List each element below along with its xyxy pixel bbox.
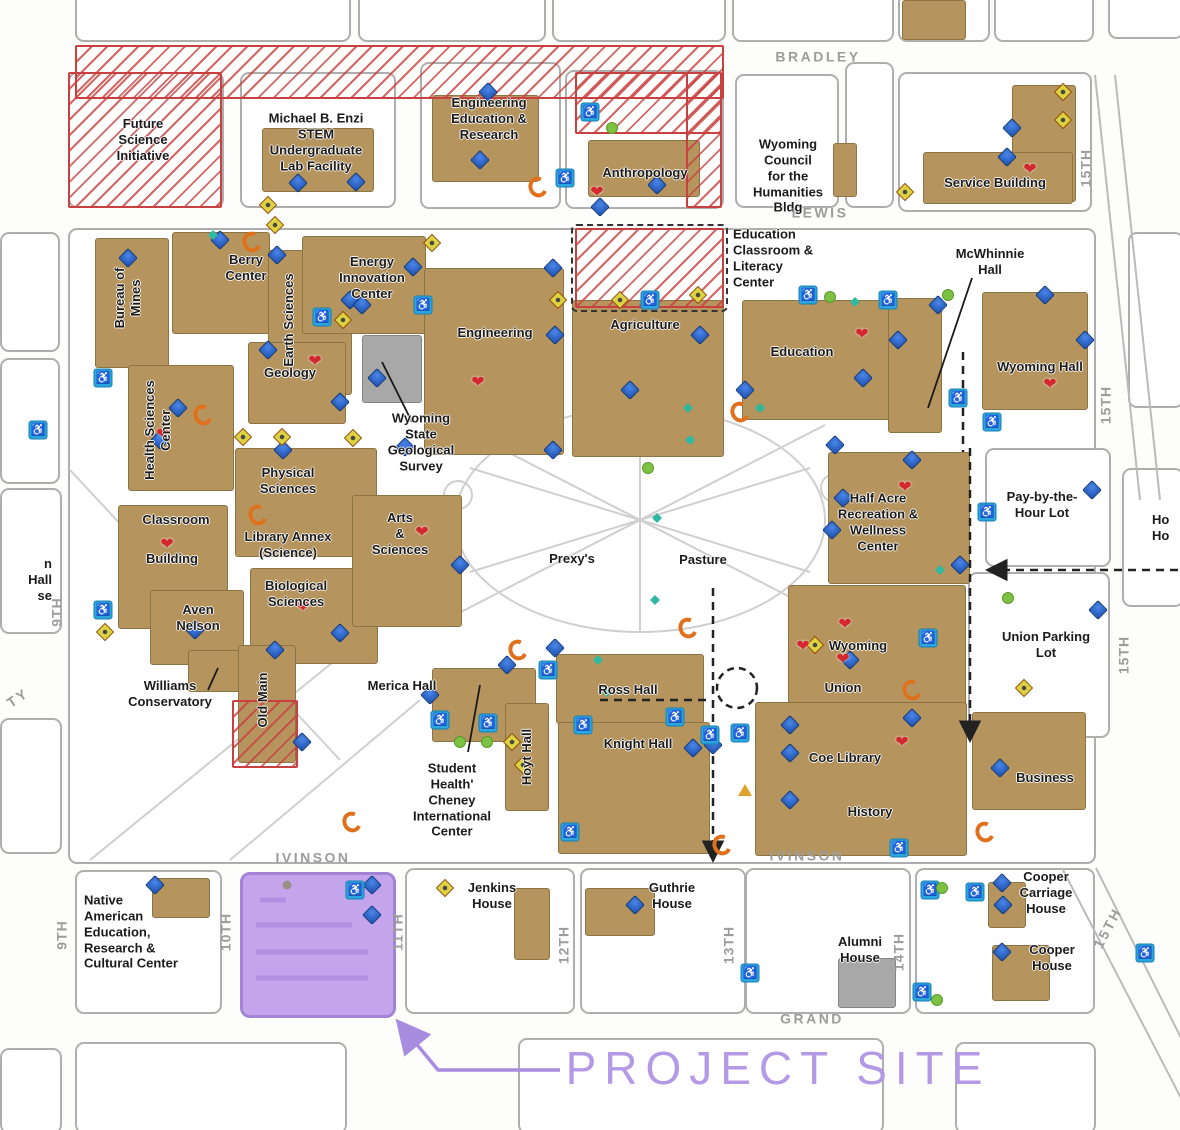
label-arts-sciences: Arts & Sciences [372,510,428,558]
label-union-parking-lot: Union Parking Lot [1002,629,1090,661]
street-label-grand: GRAND [780,1010,844,1027]
label-library-annex-science: Library Annex (Science) [245,529,332,561]
building-humanities-bldg [833,143,857,197]
city-block [358,0,546,42]
street-label-9th: 9TH [53,920,70,949]
city-block [1122,468,1180,607]
city-block [1108,0,1180,39]
access-icon: ♿ [94,369,113,388]
label-history: History [848,804,893,820]
city-block [0,232,60,352]
label-native-american-education-resear: Native American Education, Research & Cu… [84,892,178,971]
access-icon: ♿ [741,964,760,983]
campus-map: ♿♿♿♿♿♿♿♿♿♿♿♿♿♿♿♿♿♿♿♿♿♿♿♿♿♿♿♿♿❤❤❤❤❤❤❤❤❤❤❤… [0,0,1180,1130]
street-label-15th: 15TH [1097,386,1114,424]
project-site-annotation: PROJECT SITE [566,1040,991,1096]
label-future-science-initiative: Future Science Initiative [117,116,170,164]
access-icon: ♿ [913,983,932,1002]
green-icon [1002,592,1014,604]
city-block [994,0,1094,42]
label-coe-library: Coe Library [809,750,881,766]
heart-icon: ❤ [895,735,908,751]
access-icon: ♿ [561,823,580,842]
label-old-main: Old Main [255,673,271,728]
access-icon: ♿ [666,708,685,727]
building-wyoming-state-geological-survey [362,335,422,403]
label-cooper-carriage-house: Cooper Carriage House [1020,869,1073,917]
street-label-14th: 14TH [890,933,907,971]
street-label-10th: 10TH [217,913,234,951]
label-wyoming: Wyoming [829,638,887,654]
label-health-sciences-center: Health Sciences Center [142,380,174,480]
city-block [75,0,351,42]
access-icon: ♿ [539,661,558,680]
label-wyoming-hall: Wyoming Hall [997,359,1083,375]
heart-icon: ❤ [590,185,603,201]
building-top-right-building [902,0,966,40]
label-hoyt-hall: Hoyt Hall [519,729,535,785]
label-prexy-s: Prexy's [549,551,595,567]
access-icon: ♿ [479,714,498,733]
label-education: Education [771,344,834,360]
street-label-15th: 15TH [1090,904,1126,951]
street-label-12th: 12TH [555,926,572,964]
label-merica-hall: Merica Hall [368,678,437,694]
street-label-bradley: BRADLEY [775,48,860,65]
access-icon: ♿ [313,308,332,327]
label-student-health-cheney-internatio: Student Health' Cheney International Cen… [413,760,491,839]
label-berry-center: Berry Center [225,252,266,284]
label-biological-sciences: Biological Sciences [265,578,327,610]
building-guthrie-house-bldg [585,888,655,936]
label-wyoming-state-geological-survey: Wyoming State Geological Survey [388,410,454,473]
access-icon: ♿ [966,883,985,902]
access-icon: ♿ [1136,944,1155,963]
label-engineering-education-research: Engineering Education & Research [451,95,527,143]
city-block [75,1042,347,1130]
street-label-9th: 9TH [48,597,65,626]
heart-icon: ❤ [838,617,851,633]
gray-icon [283,881,292,890]
heart-icon: ❤ [1043,377,1056,393]
label-earth-sciences: Earth Sciences [281,273,297,366]
building-mcwhinnie-hall [888,298,942,433]
street-label-13th: 13TH [720,926,737,964]
city-block [0,1048,62,1130]
access-icon: ♿ [978,503,997,522]
city-block [552,0,726,42]
label-guthrie-house: Guthrie House [649,880,695,912]
access-icon: ♿ [574,716,593,735]
heart-icon: ❤ [855,327,868,343]
warn-icon [738,784,752,796]
green-icon [931,994,943,1006]
green-icon [824,291,836,303]
label-service-building: Service Building [944,175,1046,191]
access-icon: ♿ [556,169,575,188]
label-half-acre-recreation-wellness-ce: Half Acre Recreation & Wellness Center [838,490,918,553]
access-icon: ♿ [641,291,660,310]
street-label-ty: TY [4,684,33,711]
access-icon: ♿ [431,711,450,730]
access-icon: ♿ [701,726,720,745]
building-wyoming-hall [982,292,1088,410]
label-geology: Geology [264,365,316,381]
access-icon: ♿ [919,629,938,648]
label-business: Business [1016,770,1074,786]
label-education-classroom-literacy-cen: Education Classroom & Literacy Center [733,226,813,289]
label-cooper-house: Cooper House [1029,942,1075,974]
heart-icon: ❤ [836,652,849,668]
label-pay-by-the-hour-lot: Pay-by-the- Hour Lot [1007,489,1078,521]
access-icon: ♿ [890,839,909,858]
building-business [972,712,1086,810]
city-block [1128,232,1180,408]
label-building: Building [146,551,198,567]
label-classroom: Classroom [142,512,209,528]
city-block [0,718,62,854]
access-icon: ♿ [731,724,750,743]
green-icon [606,122,618,134]
street-label-11th: 11TH [389,913,406,950]
street-label-15th: 15TH [1077,149,1094,187]
label-energy-innovation-center: Energy Innovation Center [339,254,405,302]
label-alumni-house: Alumni House [838,934,882,966]
label-agriculture: Agriculture [610,317,679,333]
access-icon: ♿ [346,881,365,900]
heart-icon: ❤ [471,375,484,391]
access-icon: ♿ [581,103,600,122]
label-physical-sciences: Physical Sciences [260,465,316,497]
green-icon [936,882,948,894]
construction-hatch-zone [686,72,722,208]
green-icon [642,462,654,474]
label-pasture: Pasture [679,552,727,568]
access-icon: ♿ [29,421,48,440]
green-icon [942,289,954,301]
label-anthropology: Anthropology [602,165,687,181]
city-block [732,0,894,42]
label-michael-b-enzi-stem-undergraduat: Michael B. Enzi STEM Undergraduate Lab F… [269,110,364,173]
label-engineering: Engineering [457,325,532,341]
label-aven-nelson: Aven Nelson [176,602,219,634]
street-label-15th: 15TH [1115,636,1132,674]
label-ho-ho: Ho Ho [1152,512,1169,544]
label-knight-hall: Knight Hall [604,736,673,752]
street-label-ivinson: IVINSON [275,849,350,866]
label-union: Union [825,680,862,696]
street-label-ivinson: IVINSON [769,847,844,864]
label-jenkins-house: Jenkins House [468,880,516,912]
green-icon [454,736,466,748]
green-icon [481,736,493,748]
access-icon: ♿ [949,389,968,408]
label-ross-hall: Ross Hall [598,682,657,698]
label-bureau-of-mines: Bureau of Mines [112,268,144,329]
access-icon: ♿ [414,296,433,315]
access-icon: ♿ [94,601,113,620]
label-mcwhinnie-hall: McWhinnie Hall [956,246,1025,278]
street-label-lewis: LEWIS [792,204,849,221]
access-icon: ♿ [879,291,898,310]
access-icon: ♿ [983,413,1002,432]
label-williams-conservatory: Williams Conservatory [128,678,212,710]
heart-icon: ❤ [796,639,809,655]
building-jenkins-house-bldg [514,888,550,960]
